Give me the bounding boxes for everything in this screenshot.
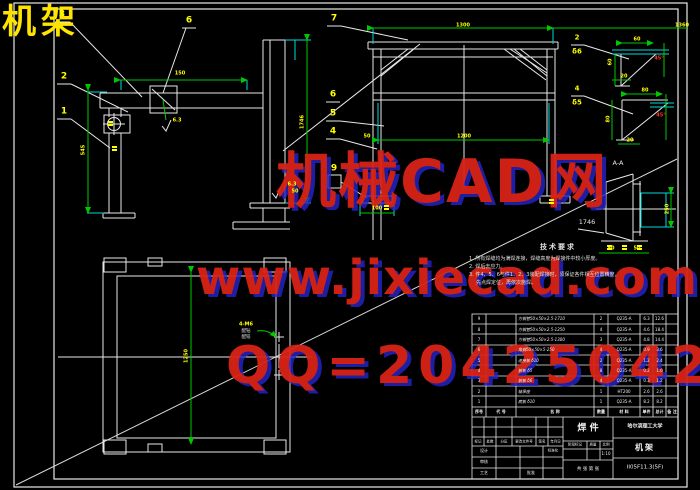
bom-cell: 8.2 (656, 400, 662, 404)
bom-cell: 4.6 (643, 328, 649, 332)
titleblock-drawing-title: 机架 (635, 444, 655, 452)
drill-note: 配钻 (242, 330, 251, 335)
bom-cell: 8 (600, 369, 603, 373)
bom-cell: 8.2 (643, 400, 649, 404)
titleblock-process-label: 工艺 (480, 471, 488, 475)
cad-drawing-sheet: 机架 机械CAD网 www.jixiecad.com QQ=20425042 技… (0, 0, 700, 490)
bom-cell: Q235-A (617, 348, 632, 352)
dim-label-vc_mid: 1200 (457, 135, 471, 140)
weld-symbol-icon (108, 121, 113, 126)
bom-cell: 3.6 (656, 348, 662, 352)
bom-cell: 6 (478, 348, 481, 352)
bom-cell: 4 (600, 379, 603, 383)
tech-note-line: 3. 件4、5、6与件1、2、3装配焊接时，须保证各件相互位置精度， (469, 273, 619, 278)
bom-cell: 角钢50×50×5-250 (518, 348, 555, 352)
bom-header: 代 号 (496, 410, 505, 414)
dim-label-vc_mid_left: 50 (364, 135, 371, 140)
bom-cell: 2.6 (643, 390, 649, 394)
balloon-b1: 1 (61, 108, 67, 117)
bom-header: 备 注 (667, 410, 676, 414)
dim-label-va_left: 545 (82, 145, 87, 155)
balloon-g_num: 4 (575, 86, 580, 93)
bom-cell: 0.2 (643, 369, 649, 373)
dim-label-vb_height: 1746 (301, 115, 306, 129)
dim-label-g_bot: 20 (627, 139, 634, 144)
bom-cell: HT200 (617, 390, 630, 394)
bom-cell: 4 (600, 328, 603, 332)
bom-cell: 筋板 δ6 (518, 379, 532, 383)
bom-cell: 底板 δ10 (518, 400, 535, 404)
dim-label-vc_top2: 1360 (675, 24, 689, 29)
bom-cell: 1 (478, 400, 481, 404)
weld-symbol-icon (112, 146, 117, 151)
bom-cell: 1.2 (656, 379, 662, 383)
bom-cell: 3 (600, 338, 603, 342)
watermark-site-name: 机械CAD网 (276, 152, 608, 212)
balloon-b3: 3 (59, 11, 65, 20)
bom-cell: 4 (600, 348, 603, 352)
dim-label-va_weld2: 6.3 (288, 183, 297, 188)
titleblock-change-row-label: 标记 (475, 440, 482, 444)
bom-cell: 2 (600, 359, 603, 363)
balloon-f_num: 2 (575, 35, 580, 42)
titleblock-product-cell: 焊 件 (577, 425, 598, 434)
weld-symbol-icon (607, 245, 612, 250)
weld-symbol-icon (637, 245, 642, 250)
titleblock-school: 哈尔滨理工大学 (627, 425, 662, 430)
watermark-url: www.jixiecad.com (196, 254, 698, 302)
bom-cell: Q235-A (617, 338, 632, 342)
dim-label-vc_bl: 100 (372, 207, 382, 212)
titleblock-audit-label: 审核 (480, 460, 488, 464)
titleblock-change-row-label: 年月日 (550, 440, 561, 444)
dim-label-va_weld: 6.3 (173, 119, 182, 124)
bom-cell: 3 (478, 379, 481, 383)
bom-cell: 筋板 δ5 (518, 369, 532, 373)
bom-cell: 1 (600, 390, 603, 394)
bom-cell: 连接板 δ10 (518, 359, 539, 363)
titleblock-standard-label: 标准化 (548, 449, 559, 453)
bom-cell: 5 (478, 359, 481, 363)
dim-label-f_left: 60 (609, 59, 614, 66)
bom-cell: 4.8 (643, 338, 649, 342)
bom-cell: 1 (600, 400, 603, 404)
titleblock-mass-label: 质量 (590, 443, 597, 447)
section-label: A-A (613, 160, 624, 167)
balloon-b6a: 6 (186, 17, 192, 26)
bom-header: 序号 (475, 410, 483, 414)
titleblock-change-row-label: 更改文件号 (515, 440, 533, 444)
dim-label-f_top: 60 (634, 38, 641, 43)
titleblock-scale-value: 1:10 (602, 452, 611, 456)
tech-requirements-title: 技术要求 (540, 244, 576, 251)
tech-note-line: 2. 焊后去应力。 (469, 265, 505, 270)
bom-cell: 方钢管50×50×2.5-1710 (518, 317, 565, 321)
bom-cell: 18.4 (655, 328, 664, 332)
bom-cell: Q235-A (617, 400, 632, 404)
dim-label-g_left: 80 (607, 116, 612, 123)
bom-cell: 9 (478, 317, 481, 321)
sheet-border (14, 3, 687, 487)
bom-cell: 2 (478, 390, 481, 394)
bom-cell: 1.2 (643, 359, 649, 363)
bom-cell: 方钢管50×50×2.5-1250 (518, 328, 565, 332)
balloon-b6b: 6 (330, 91, 336, 100)
bom-header: 名 称 (550, 410, 559, 414)
titleblock-sheet-note: 共 张 第 张 (577, 468, 599, 473)
balloon-b5: 5 (330, 110, 336, 119)
balloon-g_thk: δ5 (572, 100, 582, 107)
tech-note-line: 1. 所有焊缝均为满焊连接，焊缝高度为焊接件中较小厚度。 (469, 257, 600, 262)
titleblock-approve-label: 批准 (527, 471, 535, 475)
titleblock-change-row-label: 签名 (539, 440, 546, 444)
drawing-linework (0, 0, 700, 490)
bom-cell: 8 (478, 328, 481, 332)
balloon-b7: 7 (331, 15, 337, 24)
tech-note-line: 先点焊定位，再依次施焊。 (476, 281, 536, 286)
bom-cell: 6.3 (643, 317, 649, 321)
holes-callout: 4-M6 (239, 323, 253, 328)
bom-cell: 方钢管50×50×2.5-1300 (518, 338, 565, 342)
sheet-title-stamp: 机架 (2, 4, 80, 41)
dim-label-f_bot: 20 (621, 75, 628, 80)
bom-cell: 14.4 (655, 338, 664, 342)
dim-label-g_angle: 45° (656, 114, 665, 119)
bom-cell: 1.6 (656, 369, 662, 373)
bom-cell: 0.3 (643, 379, 649, 383)
bom-cell: 0.9 (643, 348, 649, 352)
bom-cell: Q235-A (617, 379, 632, 383)
weld-symbol-icon (384, 205, 389, 210)
dim-label-vc_top: 1300 (456, 24, 470, 29)
titleblock-drawing-number: II05F11.3(5F) (627, 465, 664, 471)
bom-header: 单件 (643, 410, 651, 414)
weld-symbol-icon (549, 199, 554, 204)
titleblock-stage-label: 阶段标记 (568, 443, 582, 447)
titleblock-change-row-label: 分区 (501, 440, 508, 444)
balloon-b9: 9 (331, 165, 337, 174)
titleblock-change-row-label: 处数 (487, 440, 494, 444)
bom-cell: 2.6 (656, 390, 662, 394)
titleblock-scale-label: 比例 (603, 443, 610, 447)
dim-1746: 1746 (579, 219, 596, 226)
bom-cell: Q235-A (617, 359, 632, 363)
bom-cell: Q235-A (617, 328, 632, 332)
dim-label-vb_low: 50 (292, 190, 299, 195)
bom-cell: Q235-A (617, 317, 632, 321)
bom-cell: 7 (478, 338, 481, 342)
bom-cell: 12.6 (655, 317, 664, 321)
bom-cell: 4 (478, 369, 481, 373)
dim-label-f_angle: 45° (654, 57, 663, 62)
dim-label-va_top: 150 (175, 72, 185, 77)
dim-label-g_top: 80 (642, 89, 649, 94)
dim-label-aa_right: 250 (666, 204, 671, 214)
ream-note: 配铰 (242, 336, 251, 341)
balloon-b4: 4 (330, 128, 336, 137)
balloon-f_thk: δ6 (572, 49, 582, 56)
bom-header: 总计 (656, 410, 664, 414)
weld-symbol-icon (622, 245, 627, 250)
bom-header: 数量 (597, 410, 605, 414)
balloon-b2: 2 (61, 73, 67, 82)
bom-header: 材 料 (619, 410, 628, 414)
bom-cell: 轴承座 (518, 390, 530, 394)
dim-label-vd_center: 1250 (185, 349, 190, 363)
titleblock-design-label: 设计 (480, 449, 488, 453)
bom-cell: 2.4 (656, 359, 662, 363)
bom-cell: Q235-A (617, 369, 632, 373)
bom-cell: 2 (600, 317, 603, 321)
